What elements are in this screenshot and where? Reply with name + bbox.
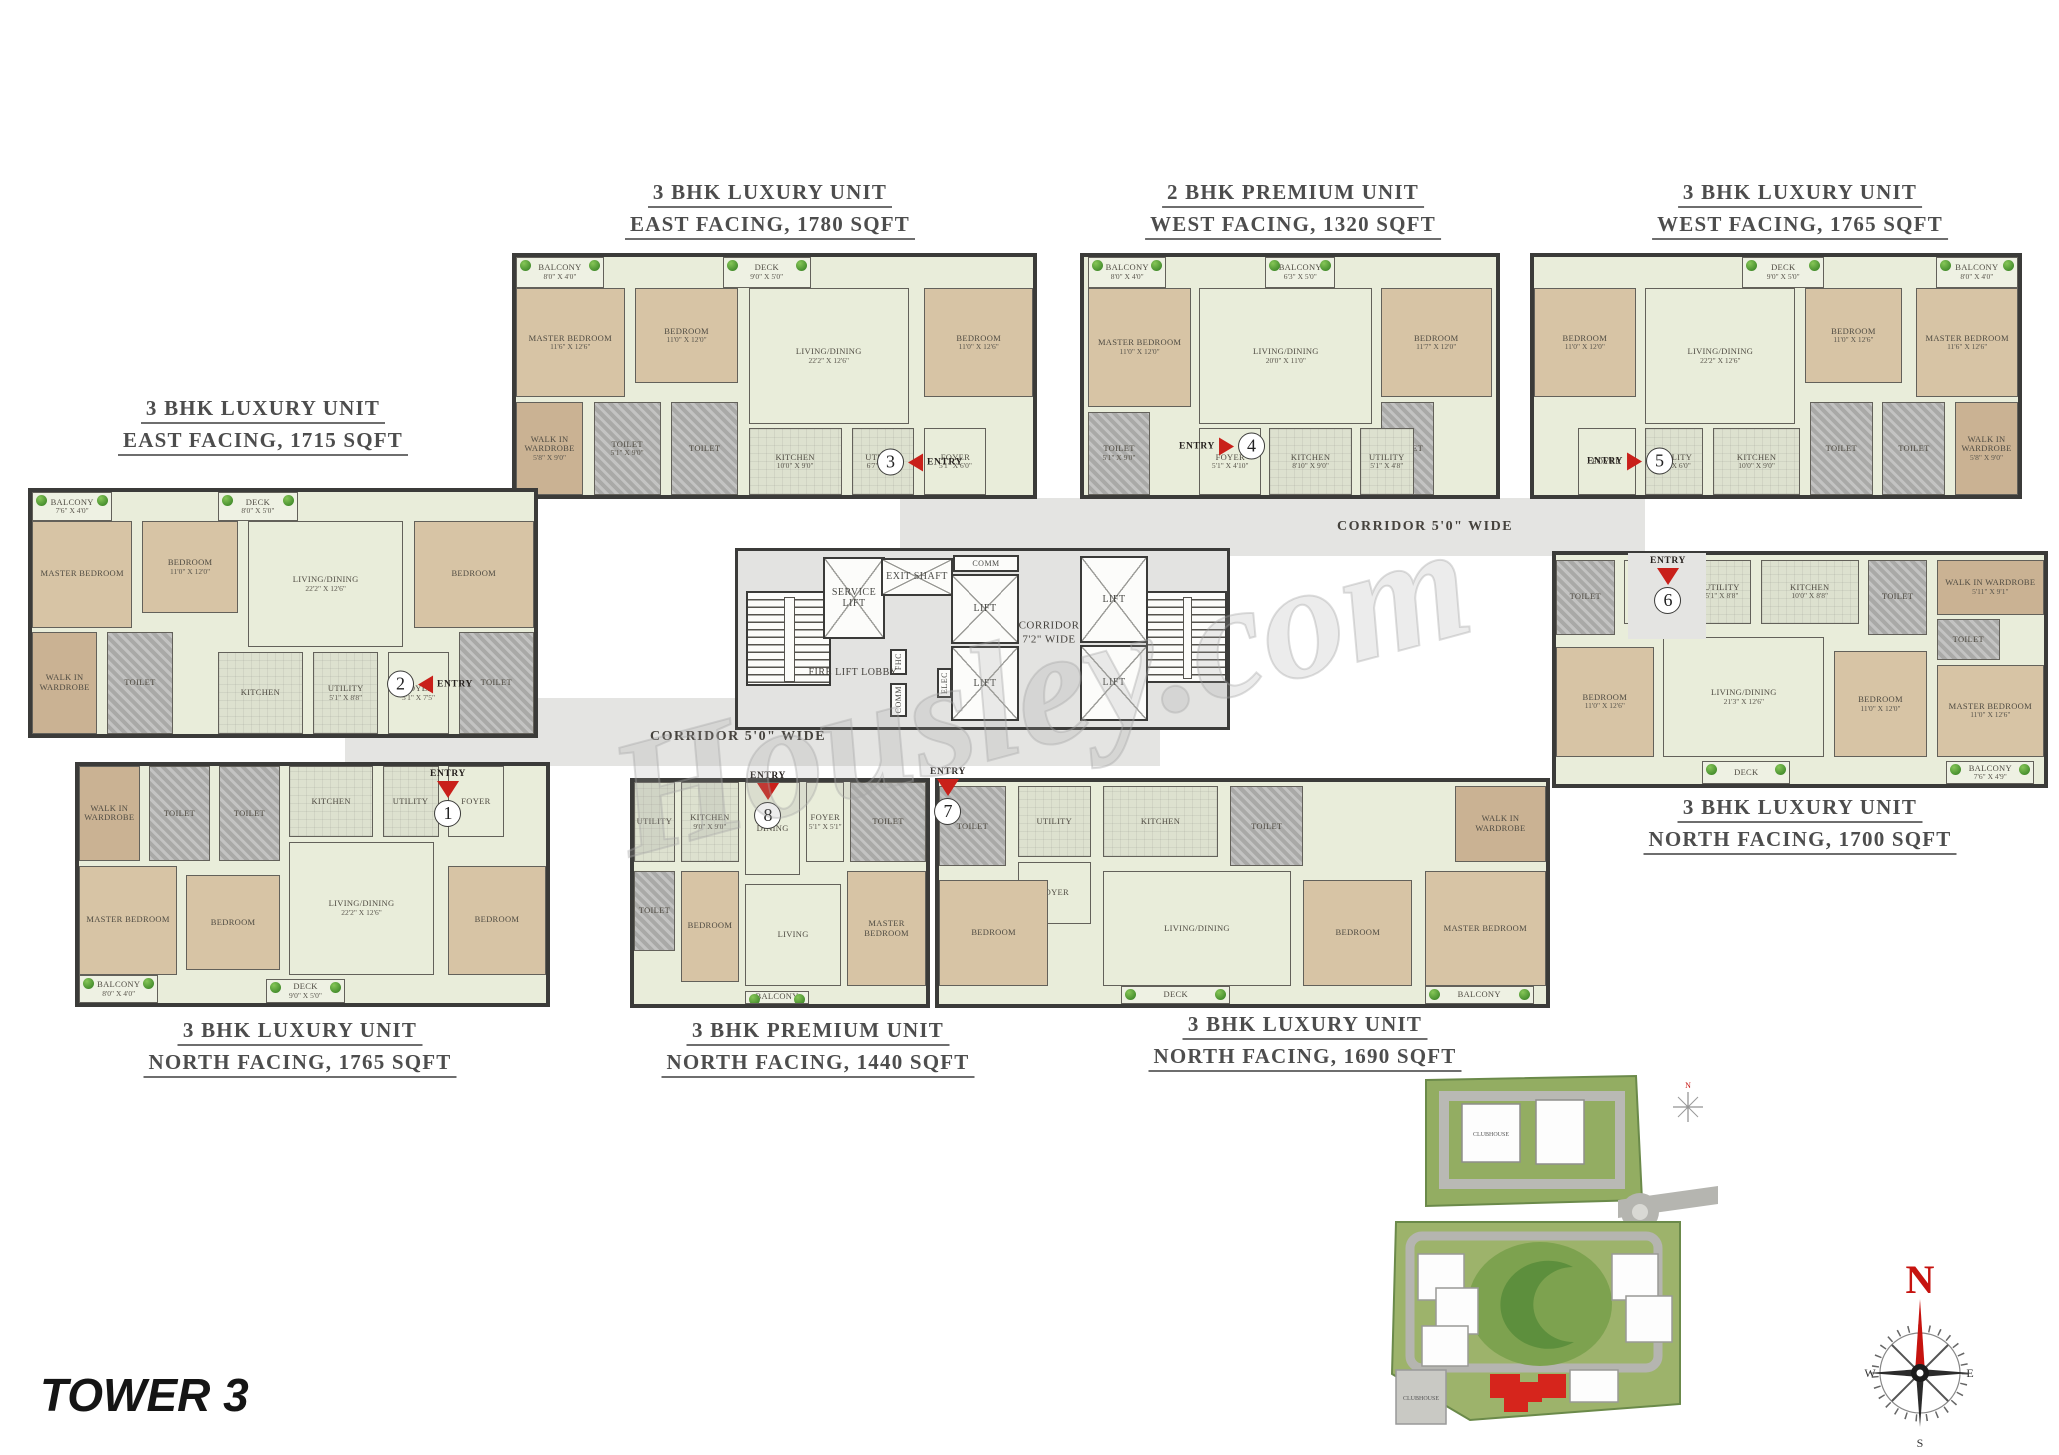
entry-marker-2: 2ENTRY [387, 671, 473, 698]
comm-room-side: COMM [890, 683, 907, 717]
clubhouse-bottom-label: CLUBHOUSE [1403, 1396, 1439, 1402]
corridor-right-label: CORRIDOR 5'0" WIDE [1337, 519, 1513, 535]
entry-arrow-icon [437, 781, 459, 798]
room-walk-in-wardrobe: WALK IN WARDROBE5'8" X 9'0" [516, 402, 583, 495]
corridor-center-label: CORRIDOR 7'2" WIDE [1019, 619, 1080, 647]
room-dims: 6'3" X 5'0" [1284, 273, 1317, 281]
room-master-bedroom: MASTER BEDROOM [1425, 871, 1546, 986]
room-walk-in-wardrobe: WALK IN WARDROBE [79, 766, 140, 861]
room-dims: 11'0" X 12'0" [170, 568, 210, 576]
entry-arrow-icon [757, 783, 779, 800]
room-toilet: TOILET [149, 766, 210, 861]
unit-title-line: 3 BHK LUXURY UNIT [1678, 180, 1922, 208]
lift-label: LIFT [1102, 594, 1125, 606]
site-map: CLUBHOUSE CLUBHOUSE [1378, 1072, 1718, 1452]
room-deck: DECK9'0" X 5'0" [723, 257, 811, 288]
unit-title-line: WEST FACING, 1320 SQFT [1145, 212, 1441, 240]
room-utility: UTILITY5'1" X 4'8" [1360, 428, 1414, 495]
room-dims: 10'0" X 9'0" [777, 462, 814, 470]
clubhouse-top-label: CLUBHOUSE [1473, 1132, 1509, 1138]
room-dims: 9'0" X 5'0" [1767, 273, 1800, 281]
entry-label: ENTRY [1179, 441, 1215, 451]
room-toilet: TOILET [1868, 560, 1927, 636]
room-name: TOILET [639, 906, 670, 916]
room-kitchen: KITCHEN10'0" X 9'0" [749, 428, 842, 495]
entry-number: 1 [434, 800, 461, 827]
room-dims: 11'0" X 12'6" [959, 343, 999, 351]
room-bedroom: BEDROOM11'0" X 12'0" [142, 521, 237, 613]
entry-marker-5: ENTRY5 [1587, 448, 1673, 475]
room-dims: 21'3" X 12'6" [1724, 698, 1765, 706]
room-dims: 22'2" X 12'6" [341, 909, 382, 917]
unit-title-line: WEST FACING, 1765 SQFT [1652, 212, 1948, 240]
room-deck: DECK [1121, 986, 1230, 1004]
lift-4: LIFT [1080, 645, 1148, 721]
room-toilet: TOILET [1882, 402, 1945, 495]
entry-number: 5 [1646, 448, 1673, 475]
exit-shaft: EXIT SHAFT [881, 558, 953, 596]
room-dims: 9'0" X 9'0" [693, 823, 726, 831]
unit-title-north-1690: 3 BHK LUXURY UNITNORTH FACING, 1690 SQFT [1149, 1012, 1462, 1076]
room-name: KITCHEN [1141, 817, 1180, 827]
room-utility: UTILITY [634, 782, 675, 862]
room-name: MASTER BEDROOM [86, 915, 169, 925]
room-dims: 7'6" X 4'9" [1974, 773, 2007, 781]
room-name: DECK [1164, 990, 1188, 1000]
room-master-bedroom: MASTER BEDROOM11'6" X 12'6" [1916, 288, 2018, 397]
compass-hub-center [1917, 1370, 1924, 1377]
room-name: MASTER BEDROOM [41, 569, 124, 579]
room-name: BEDROOM [475, 915, 520, 925]
entry-label: ENTRY [1650, 556, 1686, 566]
lift-label: LIFT [973, 603, 996, 615]
room-living-dining: LIVING/DINING20'0" X 11'0" [1199, 288, 1372, 424]
lift-label: LIFT [973, 678, 996, 690]
comm-top-label: COMM [972, 559, 999, 568]
unit-title-line: 3 BHK LUXURY UNIT [141, 396, 385, 424]
room-deck: DECK9'0" X 5'0" [1742, 257, 1824, 288]
unit-title-line: NORTH FACING, 1700 SQFT [1644, 827, 1957, 855]
room-dims: 8'0" X 4'0" [1111, 273, 1144, 281]
room-bedroom: BEDROOM11'0" X 12'6" [1556, 647, 1654, 757]
entry-label: ENTRY [430, 769, 466, 779]
room-name: TOILET [1953, 635, 1984, 645]
room-dims: 5'1" X 4'10" [1212, 462, 1249, 470]
room-dims: 5'1" X 8'8" [1705, 592, 1738, 600]
room-dims: 11'0" X 12'0" [1860, 705, 1900, 713]
entry-label: ENTRY [930, 767, 966, 777]
lift-2: LIFT [951, 646, 1019, 721]
room-toilet: TOILET [850, 782, 926, 862]
room-name: DECK [1734, 768, 1758, 778]
unit-title-line: 3 BHK PREMIUM UNIT [687, 1018, 949, 1046]
room-dims: 11'0" X 12'0" [666, 336, 706, 344]
room-living-dining: LIVING/DINING22'2" X 12'6" [289, 842, 434, 975]
room-bedroom: BEDROOM11'0" X 12'0" [1534, 288, 1636, 397]
room-name: TOILET [872, 817, 903, 827]
room-name: TOILET [1826, 444, 1857, 454]
room-name: LIVING [778, 930, 809, 940]
room-name: BALCONY [755, 992, 798, 1002]
room-name: LIVING/DINING [1164, 924, 1230, 934]
entry-label: ENTRY [927, 457, 963, 467]
unit-title-east-1780: 3 BHK LUXURY UNITEAST FACING, 1780 SQFT [625, 180, 915, 244]
unit-title-line: 3 BHK LUXURY UNIT [178, 1018, 422, 1046]
room-master-bedroom: MASTER BEDROOM [79, 866, 177, 975]
room-dims: 11'0" X 12'0" [1120, 348, 1160, 356]
unit-title-line: NORTH FACING, 1690 SQFT [1149, 1044, 1462, 1072]
room-dims: 10'0" X 9'0" [1738, 462, 1775, 470]
unit-north-1700: TOILETFOYER5'1" X 5'7"UTILITY5'1" X 8'8"… [1552, 551, 2048, 788]
entry-marker-8: ENTRY8 [750, 771, 786, 829]
room-dims: 8'0" X 4'0" [1960, 273, 1993, 281]
compass-rose: N W E S [1862, 1255, 1978, 1451]
room-walk-in-wardrobe: WALK IN WARDROBE5'11" X 9'1" [1937, 560, 2044, 615]
unit-title-line: 3 BHK LUXURY UNIT [648, 180, 892, 208]
room-dims: 11'0" X 12'6" [1833, 336, 1873, 344]
entry-number: 6 [1654, 587, 1681, 614]
room-toilet: TOILET5'1" X 9'0" [1088, 412, 1150, 495]
room-dims: 9'0" X 5'0" [289, 992, 322, 1000]
room-living-dining: LIVING/DINING22'2" X 12'6" [1645, 288, 1795, 424]
compass-e-label: E [1966, 1366, 1973, 1380]
room-dims: 5'8" X 9'0" [1970, 454, 2003, 462]
room-bedroom: BEDROOM [186, 875, 279, 970]
room-balcony: BALCONY7'6" X 4'9" [1946, 761, 2034, 784]
unit-title-north-1700: 3 BHK LUXURY UNITNORTH FACING, 1700 SQFT [1644, 795, 1957, 859]
compass-n-label: N [1906, 1257, 1935, 1302]
comm-room-top: COMM [953, 555, 1019, 572]
room-name: WALK IN WARDROBE [1456, 814, 1545, 834]
entry-marker-1: ENTRY1 [430, 769, 466, 827]
room-dims: 5'1" X 5'1" [809, 823, 842, 831]
room-dims: 5'1" X 9'0" [611, 449, 644, 457]
room-master-bedroom: MASTER BEDROOM11'6" X 12'6" [516, 288, 625, 397]
room-name: UTILITY [637, 817, 673, 827]
room-toilet: TOILET [634, 871, 675, 951]
room-toilet: TOILET [671, 402, 738, 495]
room-balcony: BALCONY8'0" X 4'0" [516, 257, 604, 288]
room-balcony: BALCONY8'0" X 4'0" [1088, 257, 1166, 288]
unit-title-east-1715: 3 BHK LUXURY UNITEAST FACING, 1715 SQFT [118, 396, 408, 460]
room-utility: UTILITY5'1" X 8'8" [313, 652, 378, 734]
room-name: BEDROOM [971, 928, 1016, 938]
room-name: TOILET [1898, 444, 1929, 454]
lift-1: LIFT [951, 574, 1019, 644]
room-name: TOILET [1251, 822, 1282, 832]
room-bedroom: BEDROOM11'0" X 12'0" [635, 288, 738, 383]
room-master-bedroom: MASTER BEDROOM [32, 521, 132, 627]
entry-arrow-icon [1219, 437, 1234, 455]
room-name: BEDROOM [688, 921, 733, 931]
room-walk-in-wardrobe: WALK IN WARDROBE [32, 632, 97, 734]
room-dims: 5'11" X 9'1" [1972, 588, 2008, 596]
room-dims: 5'8" X 9'0" [533, 454, 566, 462]
room-bedroom: BEDROOM11'0" X 12'0" [1834, 651, 1927, 756]
room-kitchen: KITCHEN9'0" X 9'0" [681, 782, 739, 862]
room-toilet: TOILET [107, 632, 172, 734]
room-living-dining: LIVING/DINING22'2" X 12'6" [749, 288, 909, 424]
room-name: BEDROOM [451, 569, 496, 579]
room-dims: 11'6" X 12'6" [1947, 343, 1987, 351]
room-foyer: FOYER5'1" X 5'1" [806, 782, 844, 862]
compass-s-label: S [1917, 1436, 1924, 1450]
room-utility: UTILITY [1018, 786, 1091, 857]
room-deck: DECK9'0" X 5'0" [266, 979, 345, 1003]
room-name: BEDROOM [211, 918, 256, 928]
room-bedroom: BEDROOM11'7" X 12'0" [1381, 288, 1492, 397]
room-kitchen: KITCHEN [1103, 786, 1218, 857]
room-name: KITCHEN [311, 797, 350, 807]
room-bedroom: BEDROOM [414, 521, 534, 627]
room-dims: 22'2" X 12'6" [1700, 357, 1741, 365]
entry-marker-7: ENTRY7 [930, 767, 966, 825]
floor-plan-canvas: CORRIDOR 5'0" WIDE CORRIDOR 5'0" WIDE BA… [0, 0, 2059, 1455]
unit-title-north-1440: 3 BHK PREMIUM UNITNORTH FACING, 1440 SQF… [662, 1018, 975, 1082]
lift-3: LIFT [1080, 556, 1148, 643]
room-kitchen: KITCHEN [218, 652, 303, 734]
room-toilet: TOILET [1937, 619, 2000, 660]
service-lift: SERVICE LIFT [823, 557, 885, 639]
room-kitchen: KITCHEN8'10" X 9'0" [1269, 428, 1351, 495]
room-name: BALCONY [1458, 990, 1501, 1000]
room-kitchen: KITCHEN [289, 766, 373, 837]
unit-title-line: 3 BHK LUXURY UNIT [1183, 1012, 1427, 1040]
room-dims: 5'1" X 8'8" [329, 694, 362, 702]
entry-label: ENTRY [750, 771, 786, 781]
room-name: UTILITY [393, 797, 429, 807]
tower-title: TOWER 3 [40, 1368, 249, 1422]
room-name: TOILET [234, 809, 265, 819]
room-balcony: BALCONY [1425, 986, 1534, 1004]
room-dims: 8'0" X 4'0" [543, 273, 576, 281]
room-bedroom: BEDROOM11'0" X 12'6" [1805, 288, 1902, 383]
entry-number: 3 [877, 449, 904, 476]
entry-marker-6: ENTRY6 [1650, 556, 1686, 614]
room-walk-in-wardrobe: WALK IN WARDROBE5'8" X 9'0" [1955, 402, 2018, 495]
room-dims: 11'6" X 12'6" [550, 343, 590, 351]
room-balcony: BALCONY [745, 991, 809, 1004]
room-dims: 22'2" X 12'6" [809, 357, 850, 365]
site-map-compass: N [1673, 1081, 1703, 1122]
entry-number: 8 [754, 802, 781, 829]
unit-title-north-1765: 3 BHK LUXURY UNITNORTH FACING, 1765 SQFT [144, 1018, 457, 1082]
room-toilet: TOILET [1230, 786, 1303, 866]
room-balcony: BALCONY7'6" X 4'0" [32, 492, 112, 521]
room-living-dining: LIVING/DINING22'2" X 12'6" [248, 521, 404, 647]
fire-lift-lobby-label: FIRE LIFT LOBBY [809, 667, 898, 680]
central-core: SERVICE LIFT EXIT SHAFT COMM LIFT LIFT L… [735, 548, 1230, 730]
room-living-dining: LIVING/DINING [1103, 871, 1291, 986]
corridor-left-label: CORRIDOR 5'0" WIDE [650, 729, 826, 745]
unit-north-1690: TOILETUTILITYKITCHENTOILETWALK IN WARDRO… [935, 778, 1550, 1008]
entry-label: ENTRY [1587, 456, 1623, 466]
room-bedroom: BEDROOM [448, 866, 546, 975]
room-dims: 11'7" X 12'0" [1416, 343, 1456, 351]
room-name: MASTER BEDROOM [1444, 924, 1527, 934]
room-name: TOILET [164, 809, 195, 819]
unit-title-line: 2 BHK PREMIUM UNIT [1162, 180, 1424, 208]
exit-shaft-label: EXIT SHAFT [886, 571, 948, 583]
room-name: WALK IN WARDROBE [80, 804, 139, 824]
entry-label: ENTRY [437, 679, 473, 689]
room-toilet: TOILET [1556, 560, 1615, 636]
unit-west-1320: BALCONY8'0" X 4'0"BALCONY6'3" X 5'0"MAST… [1080, 253, 1500, 499]
room-toilet: TOILET5'1" X 9'0" [594, 402, 661, 495]
stair-rail [1183, 597, 1193, 680]
room-dims: 9'0" X 5'0" [750, 273, 783, 281]
room-dims: 20'0" X 11'0" [1266, 357, 1306, 365]
entry-arrow-icon [1627, 452, 1642, 470]
room-dims: 22'2" X 12'6" [305, 585, 346, 593]
room-kitchen: KITCHEN10'0" X 9'0" [1713, 428, 1800, 495]
room-name: TOILET [124, 678, 155, 688]
room-deck: DECK8'0" X 5'0" [218, 492, 298, 521]
room-name: MASTER BEDROOM [848, 919, 925, 939]
room-bedroom: BEDROOM [681, 871, 739, 982]
unit-title-line: EAST FACING, 1780 SQFT [625, 212, 915, 240]
room-name: WALK IN WARDROBE [517, 435, 582, 455]
entry-arrow-icon [908, 453, 923, 471]
entry-marker-3: 3ENTRY [877, 449, 963, 476]
room-dims: 11'0" X 12'6" [1970, 711, 2010, 719]
room-dims: 5'1" X 4'8" [1370, 462, 1403, 470]
entry-marker-4: ENTRY4 [1179, 433, 1265, 460]
room-master-bedroom: MASTER BEDROOM11'0" X 12'6" [1937, 665, 2044, 757]
room-name: WALK IN WARDROBE [33, 673, 96, 693]
unit-title-west-1765: 3 BHK LUXURY UNITWEST FACING, 1765 SQFT [1652, 180, 1948, 244]
room-name: TOILET [1570, 592, 1601, 602]
room-walk-in-wardrobe: WALK IN WARDROBE [1455, 786, 1546, 861]
comm-side-label: COMM [894, 686, 903, 713]
entry-number: 4 [1238, 433, 1265, 460]
room-bedroom: BEDROOM [939, 880, 1048, 987]
entry-arrow-icon [937, 779, 959, 796]
room-dims: 10'0" X 8'8" [1791, 592, 1828, 600]
entry-arrow-icon [1657, 568, 1679, 585]
compass-w-label: W [1864, 1366, 1876, 1380]
room-bedroom: BEDROOM [1303, 880, 1412, 987]
room-master-bedroom: MASTER BEDROOM11'0" X 12'0" [1088, 288, 1191, 407]
room-name: UTILITY [1037, 817, 1073, 827]
entry-arrow-icon [418, 675, 433, 693]
unit-east-1715: BALCONY7'6" X 4'0"DECK8'0" X 5'0"MASTER … [28, 488, 538, 738]
unit-title-line: 3 BHK LUXURY UNIT [1678, 795, 1922, 823]
room-balcony: BALCONY6'3" X 5'0" [1265, 257, 1335, 288]
site-map-clubhouse-bottom: CLUBHOUSE [1396, 1370, 1446, 1424]
staircase-right [1146, 591, 1227, 683]
room-name: TOILET [689, 444, 720, 454]
room-master-bedroom: MASTER BEDROOM [847, 871, 926, 986]
unit-north-1765: WALK IN WARDROBETOILETTOILETKITCHENUTILI… [75, 762, 550, 1007]
room-balcony: BALCONY8'0" X 4'0" [79, 975, 158, 1003]
unit-title-line: NORTH FACING, 1440 SQFT [662, 1050, 975, 1078]
lift-label: LIFT [1102, 677, 1125, 689]
room-name: KITCHEN [241, 688, 280, 698]
elec-room: ELEC [937, 668, 952, 698]
room-living: LIVING [745, 884, 841, 986]
room-name: WALK IN WARDROBE [1956, 435, 2017, 455]
unit-title-line: NORTH FACING, 1765 SQFT [144, 1050, 457, 1078]
site-map-top-block: CLUBHOUSE [1426, 1076, 1642, 1206]
room-bedroom: BEDROOM11'0" X 12'6" [924, 288, 1033, 397]
room-dims: 8'10" X 9'0" [1292, 462, 1329, 470]
room-name: TOILET [1882, 592, 1913, 602]
room-living-dining: LIVING/DINING21'3" X 12'6" [1663, 637, 1824, 756]
room-name: TOILET [481, 678, 512, 688]
unit-title-west-1320: 2 BHK PREMIUM UNITWEST FACING, 1320 SQFT [1145, 180, 1441, 244]
elec-label: ELEC [940, 672, 949, 694]
room-kitchen: KITCHEN10'0" X 8'8" [1761, 560, 1859, 624]
room-toilet: TOILET [1810, 402, 1873, 495]
room-deck: DECK [1702, 761, 1790, 784]
room-dims: 7'6" X 4'0" [56, 507, 89, 515]
corridor-center-line2: 7'2" WIDE [1019, 633, 1080, 647]
room-name: BEDROOM [1336, 928, 1381, 938]
room-dims: 8'0" X 4'0" [102, 990, 135, 998]
compass-needle-north [1915, 1299, 1925, 1373]
service-lift-label: SERVICE LIFT [825, 587, 883, 610]
room-dims: 11'0" X 12'0" [1565, 343, 1605, 351]
entry-number: 2 [387, 671, 414, 698]
site-compass-n: N [1685, 1081, 1691, 1090]
room-toilet: TOILET [219, 766, 280, 861]
room-dims: 11'0" X 12'6" [1585, 702, 1625, 710]
stair-rail [784, 597, 794, 683]
entry-number: 7 [934, 798, 961, 825]
room-dims: 8'0" X 5'0" [241, 507, 274, 515]
unit-title-line: EAST FACING, 1715 SQFT [118, 428, 408, 456]
corridor-center-line1: CORRIDOR [1019, 619, 1080, 633]
room-dims: 5'1" X 9'0" [1103, 454, 1136, 462]
room-balcony: BALCONY8'0" X 4'0" [1936, 257, 2018, 288]
